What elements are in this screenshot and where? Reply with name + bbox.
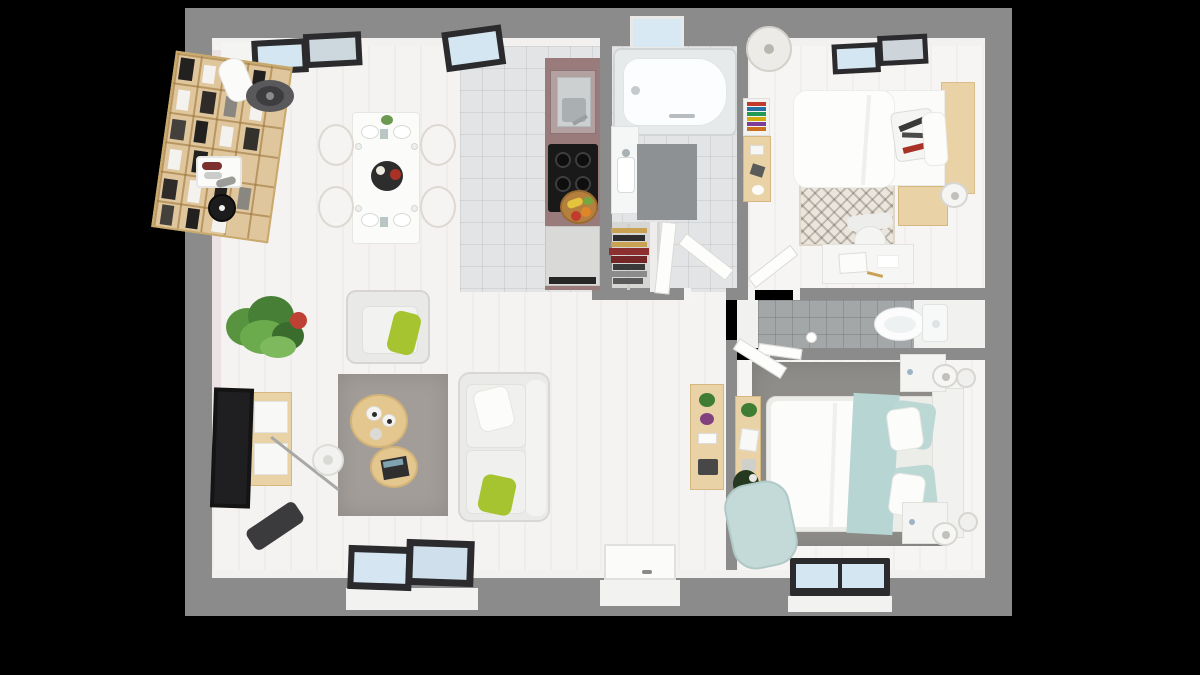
desk2-plant [741, 403, 757, 417]
toilet [874, 302, 950, 344]
dining-chair-4 [420, 186, 456, 228]
bathroom-sink-faucet [622, 149, 630, 157]
dining-chair-3 [420, 124, 456, 166]
front-door-handle [642, 570, 652, 574]
fruit-orange [581, 207, 591, 217]
decor-bowl-2 [382, 414, 396, 427]
napkin-1 [380, 129, 388, 139]
clock-face-dot [219, 205, 225, 211]
books-5 [176, 89, 191, 110]
bathtub-rail [669, 114, 695, 118]
lamp-nightstand-1 [940, 182, 968, 208]
desk-shelf-item-1 [750, 145, 764, 155]
books-10 [193, 120, 208, 143]
tv-stand-door-1 [254, 401, 288, 433]
plant-monstera [226, 296, 310, 358]
place-setting-3 [361, 213, 379, 227]
toilet-seat-inner [884, 316, 916, 333]
book-yellow [747, 117, 766, 121]
sofa [458, 372, 550, 522]
place-setting-2 [393, 125, 411, 139]
closet-rod-clothes [604, 224, 654, 290]
floor-lamp-bedroom-1 [746, 26, 792, 72]
desk-bedroom-1 [822, 244, 914, 284]
glass-2 [411, 143, 418, 150]
sliding-door-frame-b [405, 539, 475, 587]
window-kitchen-glass [448, 31, 499, 65]
garment-gray-1 [611, 271, 647, 277]
coffee-table-large [350, 394, 408, 448]
floor-plan-scene [0, 0, 1200, 675]
napkin-2 [380, 217, 388, 227]
bed2-duvet-fold [829, 403, 837, 527]
wall-clock [208, 194, 236, 222]
kitchen-cabinet [545, 226, 600, 286]
wine-bottle-1 [202, 162, 222, 170]
desk-shelf-item-3 [752, 185, 764, 195]
wall-bedroom-1-bottom [800, 288, 985, 300]
lamp-center-bedroom-1 [764, 44, 774, 54]
wine-bottle-2 [204, 172, 222, 179]
bed1-duvet [793, 90, 895, 188]
bowl-white [376, 166, 385, 175]
table-plant [381, 115, 393, 125]
fruit-lime [583, 197, 593, 205]
pendant-lamp-hub [266, 92, 274, 100]
garment-dark-2 [613, 264, 645, 270]
window-bedroom-2-sill [788, 596, 892, 612]
window-bathroom [630, 16, 684, 50]
books-16 [161, 178, 178, 200]
window-kitchen-frame [441, 24, 506, 72]
books-19 [237, 187, 252, 210]
nightstand-2b-knob [909, 519, 915, 525]
pencil-bedroom-1 [867, 271, 883, 278]
door-frame-post-2 [748, 288, 755, 300]
hanger-2 [611, 242, 647, 247]
hanger-1 [611, 228, 647, 233]
lamp-2b-dot [942, 531, 950, 539]
vase-bedroom-2-b [958, 512, 978, 532]
window-bedroom-2 [790, 558, 890, 596]
toilet-flush-button [932, 320, 940, 328]
lamp-2a-dot [942, 373, 950, 381]
book-green [747, 112, 766, 116]
glass-4 [411, 205, 418, 212]
garment-red-2 [611, 256, 647, 263]
bathtub [613, 48, 737, 136]
fruit-tomato [571, 211, 581, 221]
tv-screen [214, 391, 250, 504]
window-living-frame-b [303, 31, 363, 68]
fruit-banana [566, 197, 584, 210]
plant-leaf-5 [260, 336, 296, 358]
decor-bowl-2-dot [387, 419, 392, 424]
book-orange [747, 127, 766, 131]
books-20 [160, 204, 175, 225]
sliding-door-glass-a [353, 552, 406, 584]
nightstand-2a-knob [907, 369, 913, 375]
toilet-cistern [922, 304, 948, 342]
bed1-duvet-fold [861, 95, 871, 185]
desk2-laptop [739, 428, 760, 452]
dining-chair-1 [318, 124, 354, 166]
window-bedroom-1-glass-b [882, 39, 923, 61]
lamp-bedroom-2-b [932, 522, 958, 546]
books-9 [170, 119, 187, 141]
books-21 [185, 208, 200, 229]
laptop-bedroom-1 [838, 252, 867, 274]
books-6 [200, 91, 217, 115]
serving-tray [371, 161, 403, 191]
window-living-glass-b [309, 38, 356, 62]
magazine-top [383, 459, 404, 468]
glass-3 [355, 205, 362, 212]
fruit-basket [560, 190, 598, 224]
window-bedroom-1-frame-a [831, 42, 881, 74]
desk-shelf-item-2 [750, 163, 766, 177]
desk-shelf-bedroom-1 [743, 136, 771, 202]
floor-lamp-bulb [323, 455, 333, 465]
window-kitchen [441, 24, 511, 76]
window-bedroom-2-glass-b [842, 564, 884, 588]
bed2-pillow-white-1 [885, 406, 925, 452]
console-plant [699, 393, 715, 407]
burner-2 [575, 152, 591, 168]
decor-red-ball [290, 312, 307, 329]
toilet-paper [806, 332, 817, 343]
book-purple [747, 122, 766, 126]
window-bedroom-1-frame-b [877, 34, 929, 67]
front-door-stoop [600, 580, 680, 606]
wall-right [985, 8, 1012, 616]
sliding-door-stoop [346, 588, 478, 610]
sliding-door [348, 540, 474, 590]
books-1 [178, 57, 195, 81]
garment-red-1 [609, 248, 649, 255]
armchair [346, 290, 430, 364]
lamp-nightstand-1-dot [951, 192, 959, 200]
book-red [747, 102, 766, 106]
bed1-pillow-white [921, 111, 949, 167]
place-setting-1 [361, 125, 379, 139]
papers-bedroom-1 [877, 255, 899, 268]
cabinet-kick [549, 277, 596, 284]
bathtub-drain [631, 86, 640, 95]
books-12 [243, 127, 260, 151]
door-frame-post-1 [684, 288, 691, 300]
magazine-stack [380, 456, 409, 480]
sliding-door-frame-a [347, 545, 412, 591]
coffee-table-small [370, 446, 418, 488]
books-11 [219, 126, 234, 147]
window-bedroom-1 [831, 33, 931, 74]
front-door [604, 544, 676, 580]
floor-lamp-head [312, 444, 344, 476]
dining-chair-2 [318, 186, 354, 228]
bowl-red [390, 169, 401, 180]
rug-living [338, 374, 448, 516]
decor-bowl-1 [366, 406, 382, 421]
glass-1 [355, 143, 362, 150]
place-setting-4 [393, 213, 411, 227]
sliding-door-glass-b [412, 546, 467, 580]
wall-hall-top-b [726, 288, 748, 300]
console-frames [698, 433, 717, 444]
book-blue [747, 107, 766, 111]
burner-1 [555, 152, 571, 168]
toilet-bowl [874, 307, 926, 341]
lamp-bedroom-2-a [932, 364, 958, 388]
console-flowers [700, 413, 714, 425]
console-table [690, 384, 724, 490]
decor-vase [370, 428, 382, 440]
sofa-back [526, 380, 546, 516]
bathroom-sink-basin [617, 157, 635, 193]
bathroom-sink [611, 126, 639, 214]
window-bedroom-2-glass-a [796, 564, 838, 588]
bath-mat [637, 144, 697, 220]
tv-stand [248, 392, 292, 486]
kitchen-sink-unit [550, 70, 596, 134]
pendant-lamp [246, 80, 294, 112]
books-13 [167, 149, 182, 170]
decor-bowl-1-dot [372, 412, 377, 417]
tv [210, 387, 254, 508]
garment-gray-2 [613, 278, 643, 284]
wine-rack [196, 156, 242, 188]
bed-bedroom-1 [793, 82, 975, 194]
kitchen-sink-steel [557, 77, 591, 127]
plant-dark-sparkle [749, 474, 757, 482]
garment-dark-1 [613, 235, 645, 241]
desk-bedroom-2 [735, 396, 761, 482]
door-frame-post-3 [793, 288, 800, 300]
vase-bedroom-2-a [956, 368, 976, 388]
burner-3 [555, 176, 571, 192]
dining-table [352, 112, 420, 244]
book-row-bedroom-1 [743, 98, 770, 136]
books-2 [202, 65, 216, 84]
window-bedroom-1-glass-a [837, 47, 876, 69]
console-radio [698, 459, 718, 475]
